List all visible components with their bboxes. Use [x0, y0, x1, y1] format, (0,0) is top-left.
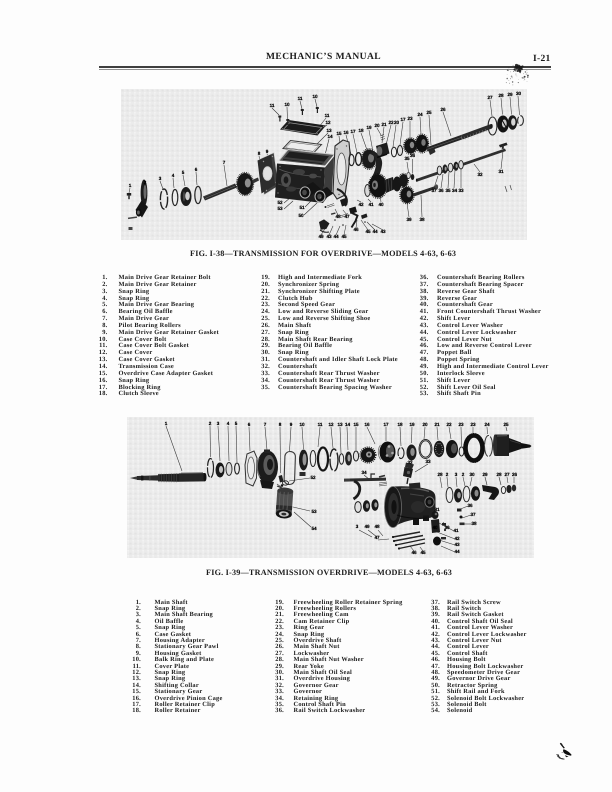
svg-text:2: 2 [209, 421, 212, 426]
svg-text:49: 49 [364, 524, 370, 529]
svg-text:17: 17 [350, 129, 356, 134]
svg-text:19: 19 [409, 422, 415, 427]
svg-text:47: 47 [344, 214, 350, 219]
svg-text:29: 29 [482, 472, 488, 477]
svg-text:32: 32 [477, 172, 483, 177]
svg-text:15: 15 [353, 422, 359, 427]
svg-text:23: 23 [470, 422, 476, 427]
svg-text:20: 20 [374, 123, 380, 128]
svg-text:53: 53 [311, 509, 317, 514]
svg-text:32: 32 [407, 460, 413, 465]
svg-text:1: 1 [129, 183, 132, 188]
svg-text:9: 9 [290, 422, 293, 427]
svg-text:17: 17 [400, 117, 406, 122]
svg-text:52: 52 [310, 475, 316, 480]
svg-text:36: 36 [410, 153, 416, 158]
svg-text:45: 45 [420, 550, 426, 555]
svg-text:45: 45 [341, 234, 347, 239]
svg-text:38: 38 [471, 521, 477, 526]
svg-text:11: 11 [318, 422, 323, 427]
svg-text:18: 18 [358, 128, 364, 133]
svg-text:44: 44 [333, 234, 339, 239]
svg-text:42: 42 [358, 202, 364, 207]
svg-text:40: 40 [378, 202, 384, 207]
svg-text:34: 34 [452, 188, 458, 193]
svg-text:3: 3 [159, 176, 162, 181]
svg-text:44: 44 [454, 549, 460, 554]
svg-text:10: 10 [284, 102, 290, 107]
svg-text:12: 12 [328, 422, 334, 427]
svg-text:2: 2 [462, 472, 465, 477]
svg-text:3: 3 [356, 524, 359, 529]
svg-text:13: 13 [326, 128, 332, 133]
svg-text:39: 39 [444, 525, 450, 530]
svg-text:7: 7 [264, 422, 267, 427]
svg-text:41: 41 [368, 202, 374, 207]
svg-text:46: 46 [411, 550, 417, 555]
svg-text:43: 43 [326, 234, 332, 239]
svg-text:50: 50 [298, 213, 304, 218]
svg-text:2: 2 [144, 180, 147, 185]
svg-text:27: 27 [504, 472, 510, 477]
svg-text:17: 17 [383, 422, 389, 427]
svg-text:19: 19 [366, 125, 372, 130]
svg-text:16: 16 [343, 130, 349, 135]
svg-text:37: 37 [431, 188, 437, 193]
svg-text:33: 33 [458, 188, 464, 193]
svg-text:28: 28 [498, 93, 504, 98]
svg-text:3: 3 [455, 472, 458, 477]
svg-text:23: 23 [407, 116, 413, 121]
svg-text:8: 8 [279, 422, 282, 427]
svg-text:42: 42 [454, 536, 460, 541]
svg-text:29: 29 [507, 92, 513, 97]
svg-text:14: 14 [327, 134, 333, 139]
svg-text:24: 24 [484, 422, 490, 427]
svg-text:41: 41 [453, 528, 459, 533]
svg-text:30: 30 [516, 91, 522, 96]
svg-text:22: 22 [446, 422, 452, 427]
svg-text:20: 20 [394, 120, 400, 125]
svg-text:46: 46 [353, 227, 359, 232]
svg-text:39: 39 [406, 217, 412, 222]
svg-text:30: 30 [469, 472, 475, 477]
svg-text:9: 9 [266, 149, 269, 154]
svg-text:24: 24 [417, 112, 423, 117]
svg-text:5: 5 [235, 421, 238, 426]
svg-text:35: 35 [445, 188, 451, 193]
svg-text:25: 25 [426, 110, 432, 115]
svg-text:4: 4 [172, 173, 175, 178]
svg-text:15: 15 [336, 131, 342, 136]
svg-text:8: 8 [258, 151, 261, 156]
svg-text:31: 31 [434, 507, 440, 512]
svg-text:43: 43 [454, 542, 460, 547]
svg-text:20: 20 [422, 422, 428, 427]
svg-text:25: 25 [503, 422, 509, 427]
svg-text:28: 28 [437, 472, 443, 477]
svg-text:12: 12 [325, 120, 331, 125]
svg-text:14: 14 [345, 422, 351, 427]
svg-text:26: 26 [440, 107, 446, 112]
svg-text:54: 54 [311, 526, 317, 531]
svg-text:47: 47 [374, 535, 380, 540]
svg-text:10: 10 [312, 94, 318, 99]
svg-text:6: 6 [248, 422, 251, 427]
svg-text:6: 6 [195, 167, 198, 172]
svg-text:51: 51 [299, 205, 305, 210]
svg-text:13: 13 [337, 422, 343, 427]
svg-text:21: 21 [434, 422, 440, 427]
svg-text:18: 18 [397, 422, 403, 427]
svg-text:23: 23 [458, 422, 464, 427]
svg-text:37: 37 [470, 512, 476, 517]
svg-text:7: 7 [223, 160, 226, 165]
svg-text:36: 36 [467, 503, 473, 508]
svg-text:16: 16 [364, 422, 370, 427]
svg-text:40: 40 [432, 525, 438, 530]
svg-text:2: 2 [446, 472, 449, 477]
svg-text:27: 27 [487, 95, 493, 100]
svg-text:34: 34 [361, 470, 367, 475]
svg-text:28: 28 [496, 472, 502, 477]
svg-text:11: 11 [325, 113, 330, 118]
svg-text:38: 38 [419, 217, 425, 222]
svg-text:52: 52 [277, 200, 283, 205]
svg-text:21: 21 [381, 122, 387, 127]
svg-text:36: 36 [438, 188, 444, 193]
svg-text:4: 4 [227, 421, 230, 426]
svg-text:10: 10 [299, 422, 305, 427]
svg-text:11: 11 [298, 96, 303, 101]
svg-text:45: 45 [365, 229, 371, 234]
svg-text:1: 1 [165, 421, 168, 426]
svg-text:48: 48 [335, 214, 341, 219]
svg-text:26: 26 [512, 472, 518, 477]
svg-text:3: 3 [217, 421, 220, 426]
svg-text:48: 48 [374, 524, 380, 529]
svg-text:53: 53 [277, 206, 283, 211]
svg-text:31: 31 [498, 169, 504, 174]
svg-text:43: 43 [380, 229, 386, 234]
svg-text:33: 33 [425, 459, 431, 464]
svg-text:44: 44 [372, 229, 378, 234]
svg-text:5: 5 [182, 170, 185, 175]
svg-text:49: 49 [318, 234, 324, 239]
svg-text:11: 11 [270, 103, 275, 108]
